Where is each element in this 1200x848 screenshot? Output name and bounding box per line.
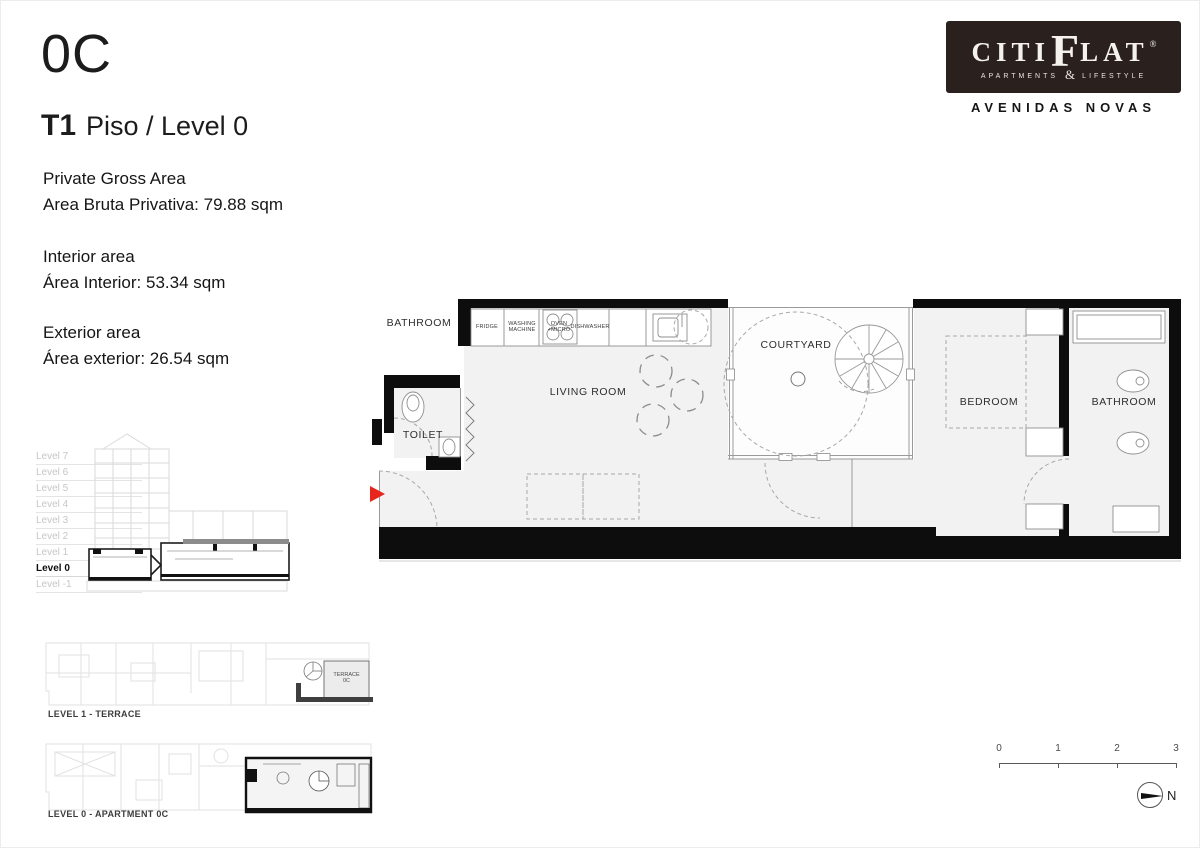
room-label-toilet: TOILET — [391, 429, 455, 441]
gross-area-en: Private Gross Area — [43, 166, 283, 192]
scale-tick-2: 2 — [1111, 743, 1123, 754]
scale-bar-tickmark — [1176, 763, 1177, 768]
typology: T1 — [41, 109, 76, 142]
appliance-label-dishwasher: DISHWASHER — [567, 324, 613, 330]
citiflat-logo: CITIFLAT® APARTMENTS & LIFESTYLE — [946, 21, 1181, 93]
scale-tick-0: 0 — [993, 743, 1005, 754]
exterior-area-block: Exterior area Área exterior: 26.54 sqm — [43, 320, 229, 372]
scale-bar-tickmark — [1058, 763, 1059, 768]
mini-plan-apartment-caption: LEVEL 0 - APARTMENT 0C — [48, 809, 168, 819]
appliance-label-washing-machine: WASHING MACHINE — [503, 321, 541, 333]
logo-location: AVENIDAS NOVAS — [946, 100, 1181, 115]
exterior-area-en: Exterior area — [43, 320, 229, 346]
typology-line: T1Piso / Level 0 — [41, 109, 248, 143]
room-label-bedroom: BEDROOM — [939, 396, 1039, 408]
scale-bar-tickmark — [999, 763, 1000, 768]
logo-lifestyle: LIFESTYLE — [1082, 73, 1146, 80]
exterior-area-pt: Área exterior: 26.54 sqm — [43, 346, 229, 372]
scale-tick-1: 1 — [1052, 743, 1064, 754]
logo-wordmark: CITIFLAT® — [946, 31, 1181, 68]
interior-area-pt: Área Interior: 53.34 sqm — [43, 270, 225, 296]
appliance-label-fridge: FRIDGE — [469, 324, 505, 330]
registered-mark: ® — [1150, 39, 1157, 49]
room-label-bathroom-right: BATHROOM — [1074, 396, 1174, 408]
north-label: N — [1167, 788, 1176, 803]
floor-label: Piso / Level 0 — [86, 111, 248, 141]
scale-bar: 0 1 2 3 — [991, 743, 1188, 773]
room-label-living-room: LIVING ROOM — [538, 386, 638, 398]
scale-tick-3: 3 — [1170, 743, 1182, 754]
terrace-highlight-label: TERRACE 0C — [324, 672, 369, 684]
scale-bar-tickmark — [1117, 763, 1118, 768]
logo-citi: CITI — [972, 37, 1051, 68]
unit-code: 0C — [41, 23, 112, 85]
north-needle-icon — [1137, 782, 1163, 808]
main-floor-plan: BATHROOM TOILET LIVING ROOM COURTYARD BE… — [369, 291, 1186, 569]
mini-plan-terrace-caption: LEVEL 1 - TERRACE — [48, 709, 141, 719]
logo-subline: APARTMENTS & LIFESTYLE — [946, 68, 1181, 84]
logo-apartments: APARTMENTS — [981, 73, 1058, 80]
logo-big-f: F — [1051, 36, 1079, 66]
floor-plan-drawing — [369, 291, 1186, 569]
scale-bar-line — [999, 763, 1176, 764]
gross-area-pt: Area Bruta Privativa: 79.88 sqm — [43, 192, 283, 218]
plan-sheet: 0C T1Piso / Level 0 Private Gross Area A… — [0, 0, 1200, 848]
building-section-drawing — [83, 429, 293, 595]
logo-ampersand: & — [1065, 67, 1075, 83]
room-label-courtyard: COURTYARD — [746, 339, 846, 351]
gross-area-block: Private Gross Area Area Bruta Privativa:… — [43, 166, 283, 218]
interior-area-block: Interior area Área Interior: 53.34 sqm — [43, 244, 225, 296]
mini-plan-apartment — [41, 736, 373, 814]
logo-lat: LAT — [1080, 37, 1149, 68]
room-label-bathroom-left: BATHROOM — [377, 317, 461, 329]
interior-area-en: Interior area — [43, 244, 225, 270]
